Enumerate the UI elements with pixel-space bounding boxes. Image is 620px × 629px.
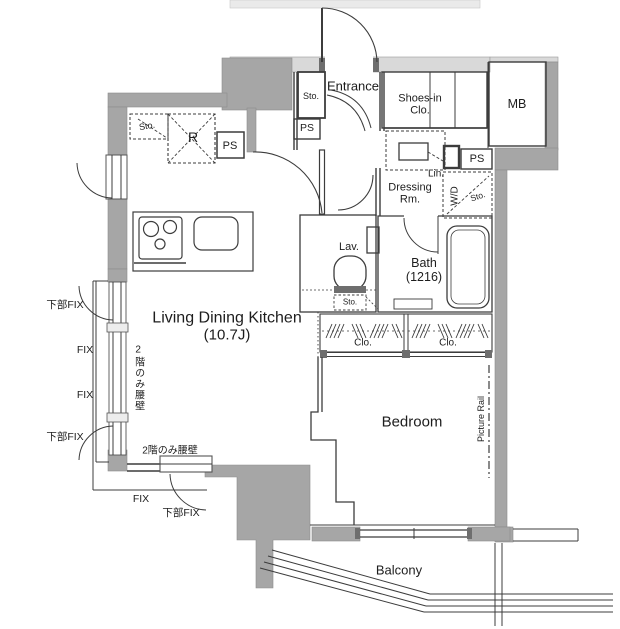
kitchen-counter <box>133 212 253 271</box>
duct-box <box>444 146 459 168</box>
label-waist-wall-horizontal: 2階のみ腰壁 <box>142 445 198 456</box>
doors <box>253 150 373 214</box>
label-dressing-line2: Rm. <box>388 194 431 206</box>
label-right-ps: PS <box>470 153 485 165</box>
label-refrigerator: R <box>188 130 198 146</box>
label-kitchen-ps: PS <box>223 140 238 152</box>
bath-door-arc <box>404 218 438 252</box>
label-waist-wall-vertical: 2階のみ腰壁 <box>132 345 143 412</box>
window-swing-arc <box>170 474 206 510</box>
dressing-door-arc <box>338 175 373 210</box>
basin <box>367 227 379 253</box>
label-dressing-room: DressingRm. <box>388 182 431 207</box>
entrance-step-curve <box>331 90 371 128</box>
label-balcony: Balcony <box>376 564 422 579</box>
label-bath: Bath(1216) <box>406 256 442 284</box>
bath-step <box>394 299 432 309</box>
label-meter-box: MB <box>508 97 527 111</box>
lavatory-room <box>300 215 379 312</box>
sink <box>194 217 238 250</box>
bathtub <box>447 226 489 308</box>
closets <box>320 314 492 358</box>
label-linen: Lin. <box>428 168 444 179</box>
label-ldk: Living Dining Kitchen(10.7J) <box>152 310 301 345</box>
label-bath-line1: Bath <box>406 256 442 270</box>
floorplan: Entrance Sto. PS Shoes-inClo. MB Lin. PS… <box>0 0 620 629</box>
label-shoes-in-closet: Shoes-inClo. <box>398 93 441 118</box>
interior-walls <box>294 62 495 525</box>
label-window-kabufix-3: 下部FIX <box>162 508 199 520</box>
label-ldk-line2: (10.7J) <box>152 328 301 345</box>
balcony-railing <box>260 529 613 626</box>
label-entrance-sto: Sto. <box>303 91 319 101</box>
label-window-fix-3: FIX <box>133 494 149 506</box>
label-picture-rail: Picture Rail <box>476 396 486 442</box>
label-shoes-line2: Clo. <box>398 105 441 117</box>
label-window-fix-2: FIX <box>77 390 93 402</box>
label-bedroom: Bedroom <box>382 415 443 432</box>
label-lavatory: Lav. <box>339 241 359 253</box>
label-entrance-ps: PS <box>300 123 314 135</box>
entrance-step-curve <box>327 95 365 131</box>
label-entrance: Entrance <box>327 80 379 95</box>
ldk-door-arc <box>253 152 322 213</box>
label-dressing-line1: Dressing <box>388 182 431 194</box>
toilet-tank <box>334 286 366 293</box>
label-closet-right: Clo. <box>439 337 457 348</box>
label-window-kabufix-1: 下部FIX <box>46 300 83 312</box>
label-lav-sto: Sto. <box>343 299 357 308</box>
label-bath-line2: (1216) <box>406 270 442 284</box>
label-window-kabufix-2: 下部FIX <box>46 432 83 444</box>
label-washer-dryer: W/D <box>449 186 460 205</box>
label-closet-left: Clo. <box>354 337 372 348</box>
label-shoes-line1: Shoes-in <box>398 93 441 105</box>
label-window-fix-1: FIX <box>77 345 93 357</box>
toilet-bowl <box>334 256 366 290</box>
door-jamb <box>373 58 379 72</box>
kitchen-fixtures <box>133 212 253 271</box>
label-ldk-line1: Living Dining Kitchen <box>152 310 301 328</box>
